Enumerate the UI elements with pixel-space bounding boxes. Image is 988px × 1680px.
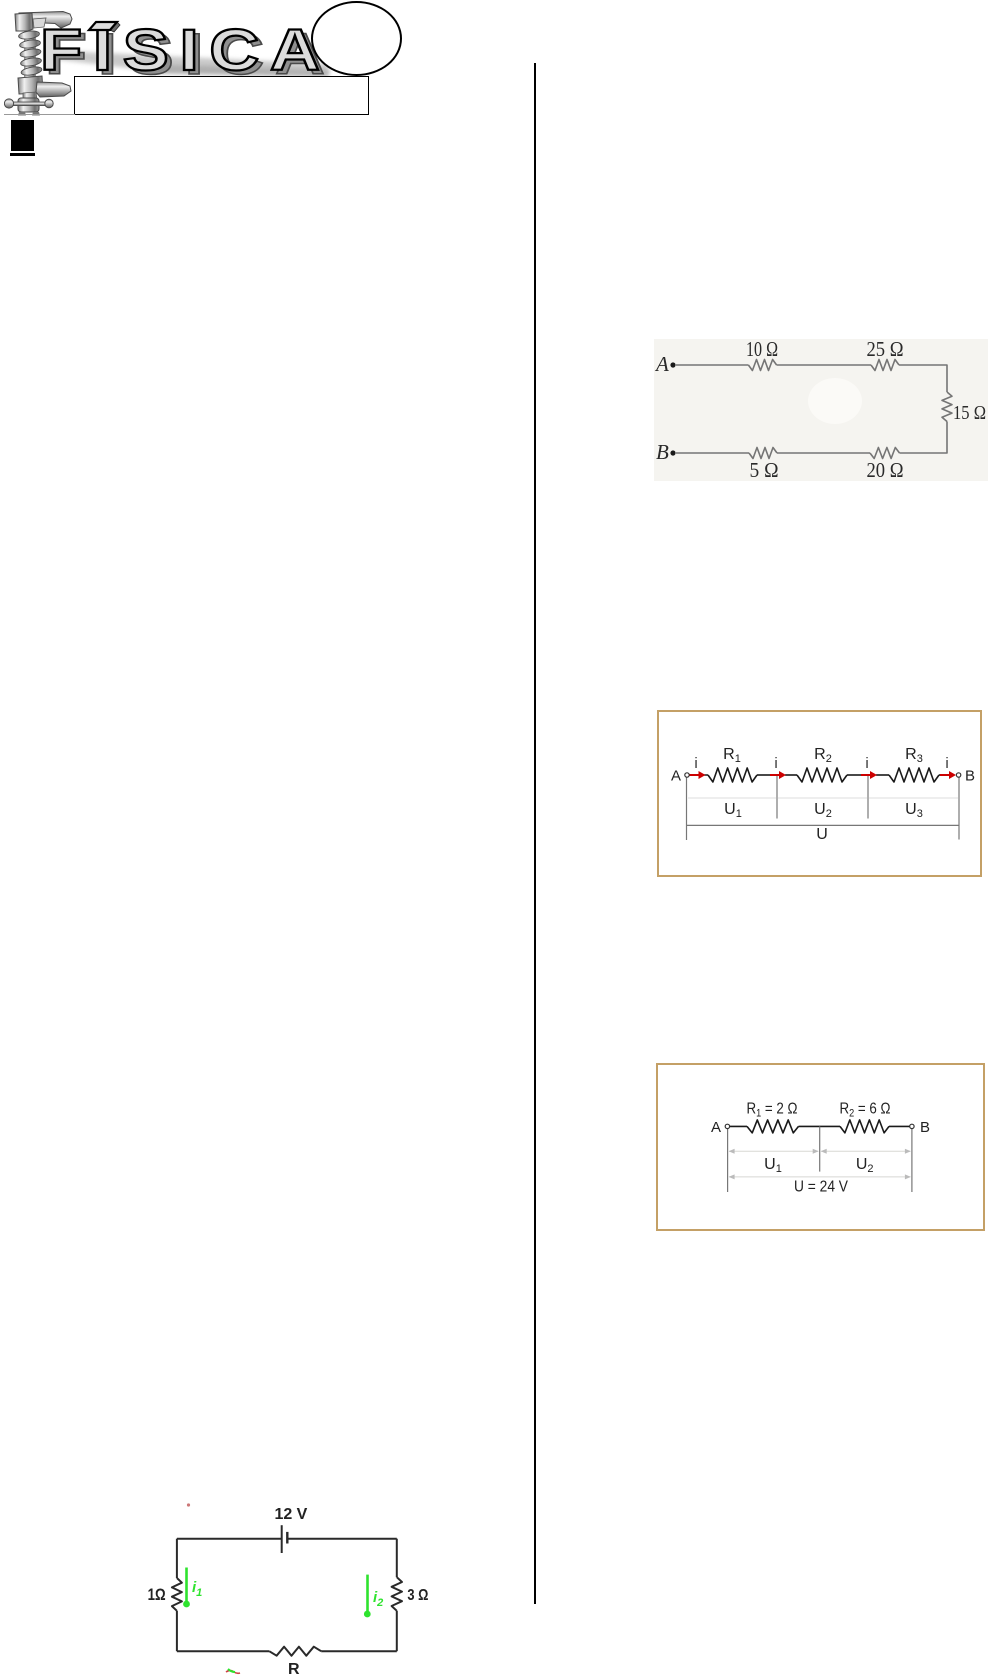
svg-text:A: A [671, 768, 681, 785]
svg-text:A: A [711, 1119, 721, 1136]
svg-text:25 Ω: 25 Ω [867, 339, 904, 361]
svg-text:R1 = 2 Ω: R1 = 2 Ω [747, 1101, 798, 1120]
svg-text:12 V: 12 V [274, 1506, 307, 1523]
svg-text:i: i [774, 755, 777, 772]
svg-text:R: R [288, 1661, 300, 1675]
svg-text:i: i [694, 755, 697, 772]
svg-text:U: U [816, 826, 828, 843]
svg-text:1Ω: 1Ω [148, 1585, 166, 1604]
svg-text:i: i [945, 755, 948, 772]
svg-text:B: B [920, 1119, 930, 1136]
svg-text:10 Ω: 10 Ω [746, 339, 778, 361]
svg-text:20 Ω: 20 Ω [867, 458, 904, 481]
svg-text:B: B [656, 440, 669, 464]
svg-text:R2 = 6 Ω: R2 = 6 Ω [840, 1101, 891, 1120]
svg-text:i: i [865, 755, 868, 772]
svg-text:3 Ω: 3 Ω [407, 1587, 428, 1604]
svg-text:15 Ω: 15 Ω [953, 402, 986, 424]
svg-text:B: B [965, 768, 975, 785]
svg-text:A: A [654, 352, 669, 376]
svg-text:5 Ω: 5 Ω [750, 458, 779, 481]
svg-text:U = 24 V: U = 24 V [794, 1179, 848, 1196]
